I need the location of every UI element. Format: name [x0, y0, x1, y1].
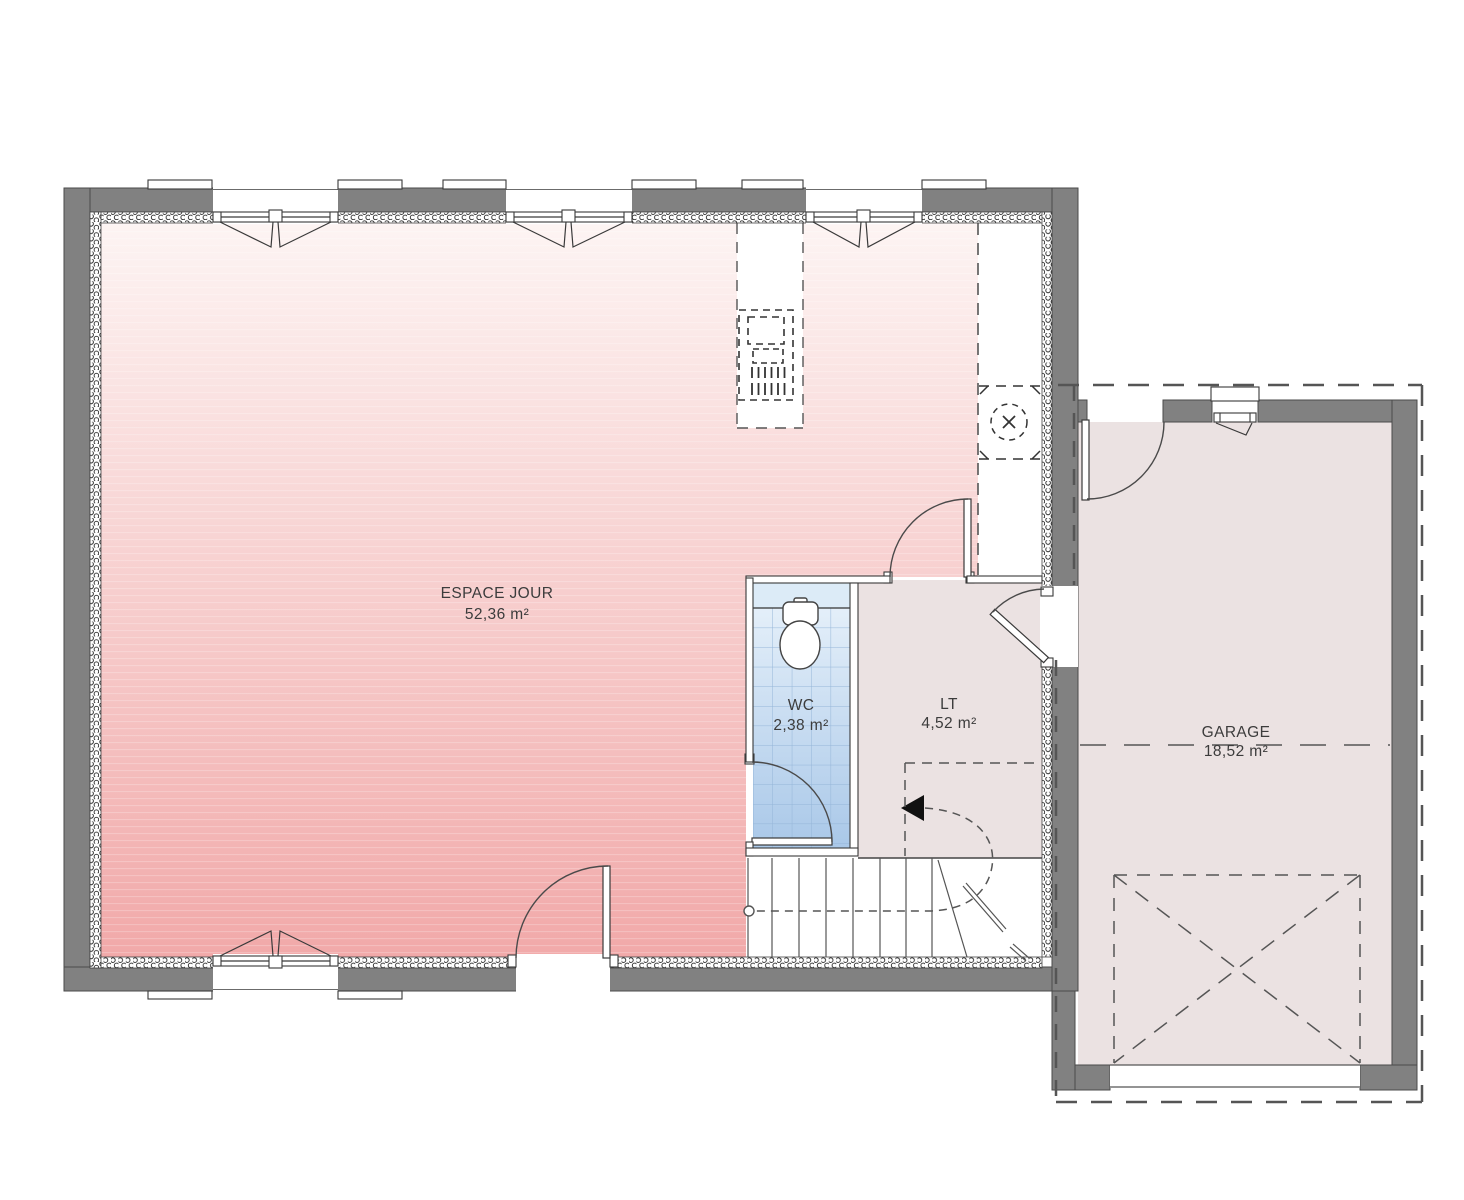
- label-garage-name: GARAGE: [1202, 724, 1271, 741]
- floor-plan-page: ESPACE JOUR 52,36 m² WC 2,38 m² LT 4,52 …: [0, 0, 1464, 1200]
- label-espace-jour-name: ESPACE JOUR: [441, 585, 554, 602]
- utility-column: [978, 223, 1042, 578]
- label-garage-area: 18,52 m²: [1204, 743, 1268, 760]
- label-lt-name: LT: [940, 696, 958, 713]
- label-wc-area: 2,38 m²: [773, 717, 828, 734]
- kitchen-strip: [737, 223, 803, 428]
- garage-door-band: [1110, 1065, 1360, 1088]
- label-lt-area: 4,52 m²: [921, 715, 976, 732]
- label-espace-jour-area: 52,36 m²: [465, 606, 529, 623]
- label-wc-name: WC: [788, 697, 815, 714]
- floor-plan-drawing: ESPACE JOUR 52,36 m² WC 2,38 m² LT 4,52 …: [0, 0, 1464, 1200]
- toilet: [780, 598, 820, 669]
